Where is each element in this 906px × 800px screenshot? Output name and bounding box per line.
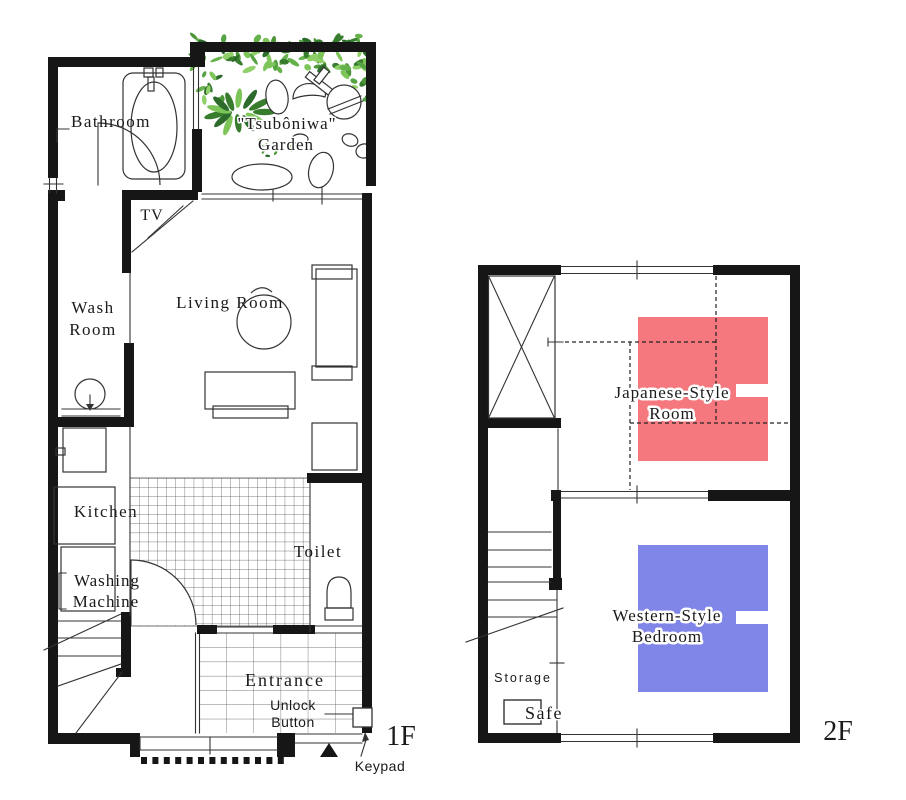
- wall: [478, 265, 488, 743]
- porch-dot: [209, 757, 215, 764]
- stair-tread: [58, 664, 121, 686]
- keypad-arrow: [361, 740, 366, 756]
- garden-stone: [340, 132, 359, 149]
- leaf-icon: [189, 32, 199, 41]
- wall: [122, 190, 198, 200]
- label-washing-2: Machine: [73, 592, 139, 611]
- floorplan-svg: Bathroom "Tsubôniwa" Garden TV Wash Room…: [0, 0, 906, 800]
- wall: [48, 57, 205, 67]
- leaf-icon: [201, 95, 207, 105]
- wall: [713, 265, 800, 275]
- porch-dot: [255, 757, 261, 764]
- porch-dot: [232, 757, 238, 764]
- label-living-room: Living Room: [176, 293, 284, 312]
- low-table-edge: [213, 406, 288, 418]
- wall: [713, 733, 800, 743]
- futon-gap: [736, 384, 769, 397]
- porch-dot: [141, 757, 147, 764]
- wall: [553, 501, 561, 579]
- label-kitchen: Kitchen: [74, 502, 138, 521]
- wall: [478, 265, 561, 275]
- wall: [366, 42, 376, 186]
- toilet-room: [325, 577, 353, 620]
- wall: [48, 57, 58, 178]
- label-safe: Safe: [525, 703, 563, 723]
- label-wash-1: Wash: [71, 298, 114, 317]
- porch-dot: [187, 757, 193, 764]
- label-western-2: Bedroom: [632, 627, 702, 646]
- floor-2f: Japanese-Style Room Western-Style Bedroo…: [466, 261, 853, 747]
- wall: [122, 198, 131, 273]
- wall: [124, 343, 134, 427]
- fridge: [63, 428, 106, 472]
- label-japanese-1: Japanese-Style: [614, 383, 729, 402]
- porch-dots: [141, 757, 284, 764]
- label-bathroom: Bathroom: [71, 112, 151, 131]
- wash-room: [62, 379, 120, 416]
- porch-dot: [152, 757, 158, 764]
- wall: [307, 473, 372, 483]
- toilet-bowl: [327, 577, 351, 608]
- label-western-1: Western-Style: [613, 606, 722, 625]
- wall: [116, 668, 131, 677]
- label-tv: TV: [140, 207, 163, 224]
- bamboo-crosspiece: [314, 67, 329, 84]
- wall: [277, 733, 295, 757]
- wall: [48, 733, 140, 744]
- wall: [192, 129, 202, 192]
- sofa-arm: [312, 265, 352, 279]
- wall: [273, 625, 315, 634]
- garden-stone-large: [232, 164, 292, 190]
- label-storage: Storage: [494, 671, 552, 685]
- bed-gap: [736, 611, 769, 624]
- wall: [121, 612, 131, 677]
- label-floor-2f: 2F: [823, 716, 853, 747]
- floorplan-page: Bathroom "Tsubôniwa" Garden TV Wash Room…: [0, 0, 906, 800]
- wall: [130, 733, 140, 757]
- label-floor-1f: 1F: [386, 721, 416, 752]
- wall: [790, 265, 800, 743]
- label-leader: [57, 129, 69, 142]
- label-unlock-2: Button: [271, 714, 314, 730]
- faucet-arrow-head: [86, 404, 94, 411]
- garden-stone: [305, 150, 337, 191]
- cabinet: [312, 423, 357, 470]
- leaf-icon: [303, 63, 312, 72]
- leaf-icon: [210, 55, 224, 63]
- unlock-button-box: [353, 708, 372, 727]
- label-keypad: Keypad: [355, 758, 405, 774]
- wall: [48, 193, 58, 733]
- label-toilet: Toilet: [294, 542, 342, 561]
- low-table: [205, 372, 295, 409]
- label-japanese-2: Room: [649, 404, 695, 423]
- stair-tread: [76, 672, 122, 733]
- label-entrance: Entrance: [245, 670, 325, 690]
- wall: [478, 733, 561, 743]
- label-leader: [59, 573, 66, 609]
- porch-dot: [244, 757, 250, 764]
- label-garden-1: "Tsubôniwa": [237, 114, 336, 133]
- door-arc: [98, 123, 160, 185]
- floor-1f: Bathroom "Tsubôniwa" Garden TV Wash Room…: [44, 32, 416, 774]
- leaf-icon: [355, 34, 363, 39]
- porch-dot: [278, 757, 284, 764]
- label-unlock-1: Unlock: [270, 697, 316, 713]
- label-garden-2: Garden: [258, 135, 314, 154]
- porch-dot: [266, 757, 272, 764]
- leaf-icon: [350, 77, 359, 84]
- keypad-arrow-head: [362, 732, 369, 742]
- wall: [48, 417, 133, 427]
- hallway: [130, 478, 310, 626]
- porch-dot: [164, 757, 170, 764]
- wall: [549, 578, 562, 590]
- north-triangle-icon: [320, 743, 338, 757]
- leaf-icon: [234, 88, 243, 108]
- label-wash-2: Room: [69, 320, 117, 339]
- sofa-arm: [312, 366, 352, 380]
- leaf-icon: [265, 154, 270, 157]
- sofa-body: [316, 269, 357, 367]
- wall: [551, 490, 561, 501]
- porch-dot: [198, 757, 204, 764]
- wall: [708, 490, 790, 501]
- toilet-tank: [325, 608, 353, 620]
- bath-faucet: [148, 77, 154, 91]
- wall: [197, 625, 217, 634]
- wall: [478, 418, 561, 428]
- label-washing-1: Washing: [74, 571, 140, 590]
- porch-dot: [221, 757, 227, 764]
- leaf-icon: [242, 64, 257, 74]
- leaf-icon: [201, 71, 207, 79]
- wall: [362, 193, 372, 733]
- wall: [196, 42, 376, 52]
- porch-dot: [175, 757, 181, 764]
